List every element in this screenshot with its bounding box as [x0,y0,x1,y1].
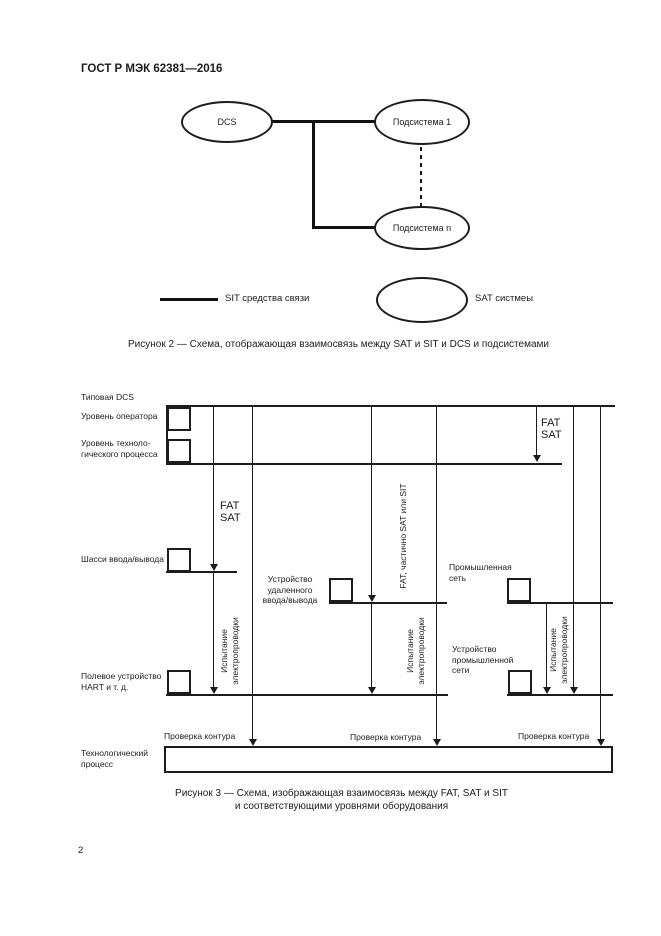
subsystem-continuation-dashed-line [420,147,422,206]
figure3-caption-line2: и соответствующими уровнями оборудования [11,800,661,813]
node-subsystem-1-label: Подсистема 1 [393,117,451,127]
arrow-loop-check-middle [436,405,437,739]
label-industrial-net-line1: Промышленная [449,562,512,573]
label-wiring-test-left: Испытание электропроводки [219,611,241,691]
box-process-level [167,439,191,463]
sit-link-vertical [312,120,315,229]
label-industrial-net-line2: сеть [449,573,512,584]
legend-ellipse-sample [376,277,468,323]
label-industrial-net-device-line1: Устройство [452,644,513,655]
legend-line-label: SIT средства связи [225,294,309,305]
label-sat: SAT [541,430,562,442]
label-wiring-test-line1: Испытание [548,610,559,690]
box-io-chassis [167,548,191,572]
label-fat-sat-right: FAT SAT [541,418,562,441]
label-loop-check-right: Проверка контура [518,731,589,742]
figure2-caption: Рисунок 2 — Схема, отображающая взаимосв… [8,338,661,351]
label-tech-process-line2: процесс [81,759,148,770]
label-fat-partial-sat-sit: FAT, частично SAT или SIT [398,471,410,601]
arrowhead-wiring-test-left [210,687,218,694]
node-subsystem-1: Подсистема 1 [374,99,470,145]
line-process-level [166,463,562,465]
label-industrial-net-device-line2: промышленной [452,655,513,666]
arrow-loop-check-right [600,405,601,739]
label-process-level-line1: Уровень техноло- [81,438,158,449]
label-field-device: Полевое устройство HART и т. д. [81,671,161,692]
line-operator-level [166,405,615,407]
box-field-device [167,670,191,694]
label-remote-io-line3: ввода/вывода [256,595,324,606]
arrow-wiring-test-left [213,571,214,687]
figure3-caption: Рисунок 3 — Схема, изображающая взаимосв… [11,787,661,813]
label-wiring-test-line2: электропроводки [559,610,570,690]
label-fat-sat-left: FAT SAT [220,501,241,524]
label-wiring-test-right: Испытание электропроводки [548,610,570,690]
label-loop-check-left: Проверка контура [164,731,235,742]
label-io-chassis: Шасси ввода/вывода [81,554,164,565]
figure3-caption-line1: Рисунок 3 — Схема, изображающая взаимосв… [11,787,661,800]
label-remote-io-line1: Устройство [256,574,324,585]
arrow-fat-sat-left [213,405,214,564]
label-process-level-line2: гического процесса [81,449,158,460]
line-remote-io [329,602,447,604]
label-industrial-net: Промышленная сеть [449,562,512,583]
label-wiring-test-line2: электропроводки [416,611,427,691]
arrow-wiring-test-right-inner [546,602,547,687]
label-wiring-test-line1: Испытание [405,611,416,691]
page-number: 2 [78,845,83,856]
box-technological-process [164,746,613,773]
node-dcs-label: DCS [217,117,236,127]
label-operator-level: Уровень оператора [81,411,157,422]
arrow-wiring-test-right-outer [573,405,574,687]
arrowhead-loop-check-middle [433,739,441,746]
label-wiring-test-line1: Испытание [219,611,230,691]
sit-link-subn [312,226,376,229]
label-loop-check-middle: Проверка контура [350,732,421,743]
legend-line-sample [160,298,218,301]
node-dcs: DCS [181,101,273,143]
label-fat: FAT [220,501,241,513]
document-page: ГОСТ Р МЭК 62381—2016 DCS Подсистема 1 П… [0,0,661,936]
line-industrial-net [507,602,613,604]
label-wiring-test-line2: электропроводки [230,611,241,691]
arrowhead-loop-check-left [249,739,257,746]
arrow-fat-sat-right [536,405,537,455]
label-process-level: Уровень техноло- гического процесса [81,438,158,459]
label-sat: SAT [220,513,241,525]
label-remote-io-line2: удаленного [256,585,324,596]
label-industrial-net-device: Устройство промышленной сети [452,644,513,676]
line-field-device-right [507,694,613,696]
label-tech-process: Технологический процесс [81,748,148,769]
arrowhead-fat-sat-right [533,455,541,462]
arrowhead-loop-check-right [597,739,605,746]
label-typical-dcs: Типовая DCS [81,392,134,403]
label-fat: FAT [541,418,562,430]
box-remote-io [329,578,353,602]
arrow-fat-partial [371,405,372,595]
line-field-device [166,694,448,696]
box-operator-level [167,407,191,431]
sit-link-dcs-sub1 [271,120,376,123]
label-tech-process-line1: Технологический [81,748,148,759]
label-field-device-line2: HART и т. д. [81,682,161,693]
arrow-wiring-test-middle [371,602,372,687]
arrowhead-wiring-test-right-outer [570,687,578,694]
label-wiring-test-middle: Испытание электропроводки [405,611,427,691]
page-header: ГОСТ Р МЭК 62381—2016 [81,63,222,75]
label-field-device-line1: Полевое устройство [81,671,161,682]
node-subsystem-n-label: Подсистема n [393,223,451,233]
label-remote-io: Устройство удаленного ввода/вывода [256,574,324,606]
arrowhead-wiring-test-middle [368,687,376,694]
label-industrial-net-device-line3: сети [452,665,513,676]
arrow-loop-check-left [252,405,253,739]
arrowhead-fat-partial [368,595,376,602]
node-subsystem-n: Подсистема n [374,206,470,250]
arrowhead-fat-sat-left [210,564,218,571]
legend-ellipse-label: SAT систмеы [475,294,533,305]
